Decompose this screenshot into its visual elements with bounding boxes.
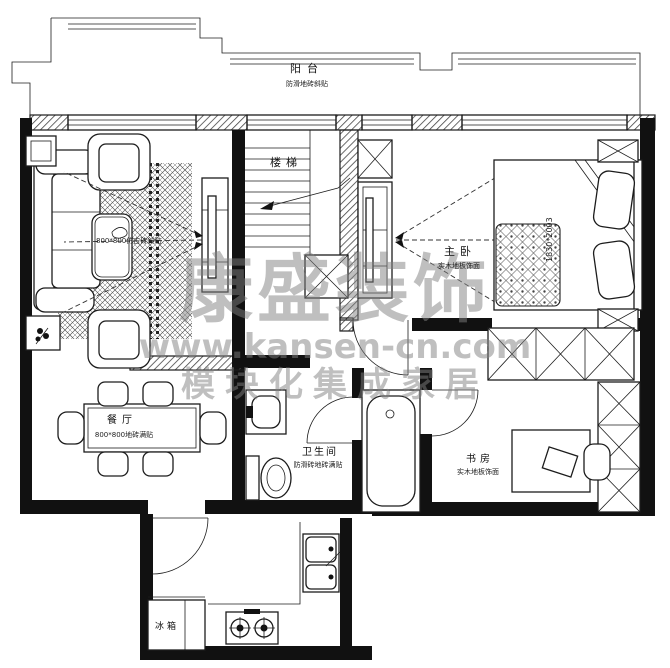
pillow: [592, 170, 635, 230]
balcony-outline: [12, 18, 640, 118]
stairs-direction-arrow: [260, 178, 350, 210]
floor-plan-svg: 康盛装饰 www.kansen-cn.com 模块化集成家居 阳台 防滑地砖斜贴…: [0, 0, 670, 668]
bathtub: [362, 390, 420, 512]
dining-label: 餐厅: [107, 413, 137, 426]
dining-note: 800*800地砖满贴: [95, 430, 153, 439]
bedroom-label: 主卧: [444, 245, 476, 258]
study-label: 书房: [466, 452, 494, 465]
desk: [512, 430, 590, 492]
coffee-table: [92, 214, 132, 280]
bathroom-label: 卫生间: [302, 445, 338, 458]
dining-table: [84, 404, 200, 452]
side-table: [26, 136, 56, 166]
stove: [226, 609, 278, 644]
watermark-slogan: 模块化集成家居: [181, 365, 489, 405]
bed-size-label: 1830*2003: [545, 217, 554, 262]
watermark: 康盛装饰 www.kansen-cn.com 模块化集成家居: [139, 247, 532, 405]
bed: [494, 160, 642, 310]
kitchen-sink: [303, 534, 340, 592]
pillow: [592, 240, 635, 300]
living-tile-note: 800*800仿古砖斜贴: [96, 236, 161, 245]
armchair-top: [88, 134, 150, 190]
balcony-note: 防滑地砖斜贴: [286, 79, 328, 88]
rug-border-band: [148, 163, 160, 339]
bedroom-cabinet: [358, 140, 392, 178]
study-note: 实木地板饰面: [457, 467, 499, 476]
fridge-label: 冰箱: [155, 620, 179, 632]
desk-chair: [584, 444, 610, 480]
bedroom-note: 实木地板饰面: [438, 261, 480, 270]
watermark-site: www.kansen-cn.com: [139, 327, 532, 367]
bathroom-note: 防滑砖地砖满贴: [294, 460, 343, 469]
plant-table: [26, 316, 60, 350]
toilet: [246, 456, 291, 500]
watermark-brand: 康盛装饰: [179, 247, 491, 333]
stairs-label: 楼梯: [270, 155, 302, 169]
nightstand-top: [598, 140, 638, 162]
balcony-label: 阳台: [290, 61, 324, 75]
floor-plan-canvas: 康盛装饰 www.kansen-cn.com 模块化集成家居 阳台 防滑地砖斜贴…: [0, 0, 670, 668]
kitchen-door: [152, 518, 208, 574]
